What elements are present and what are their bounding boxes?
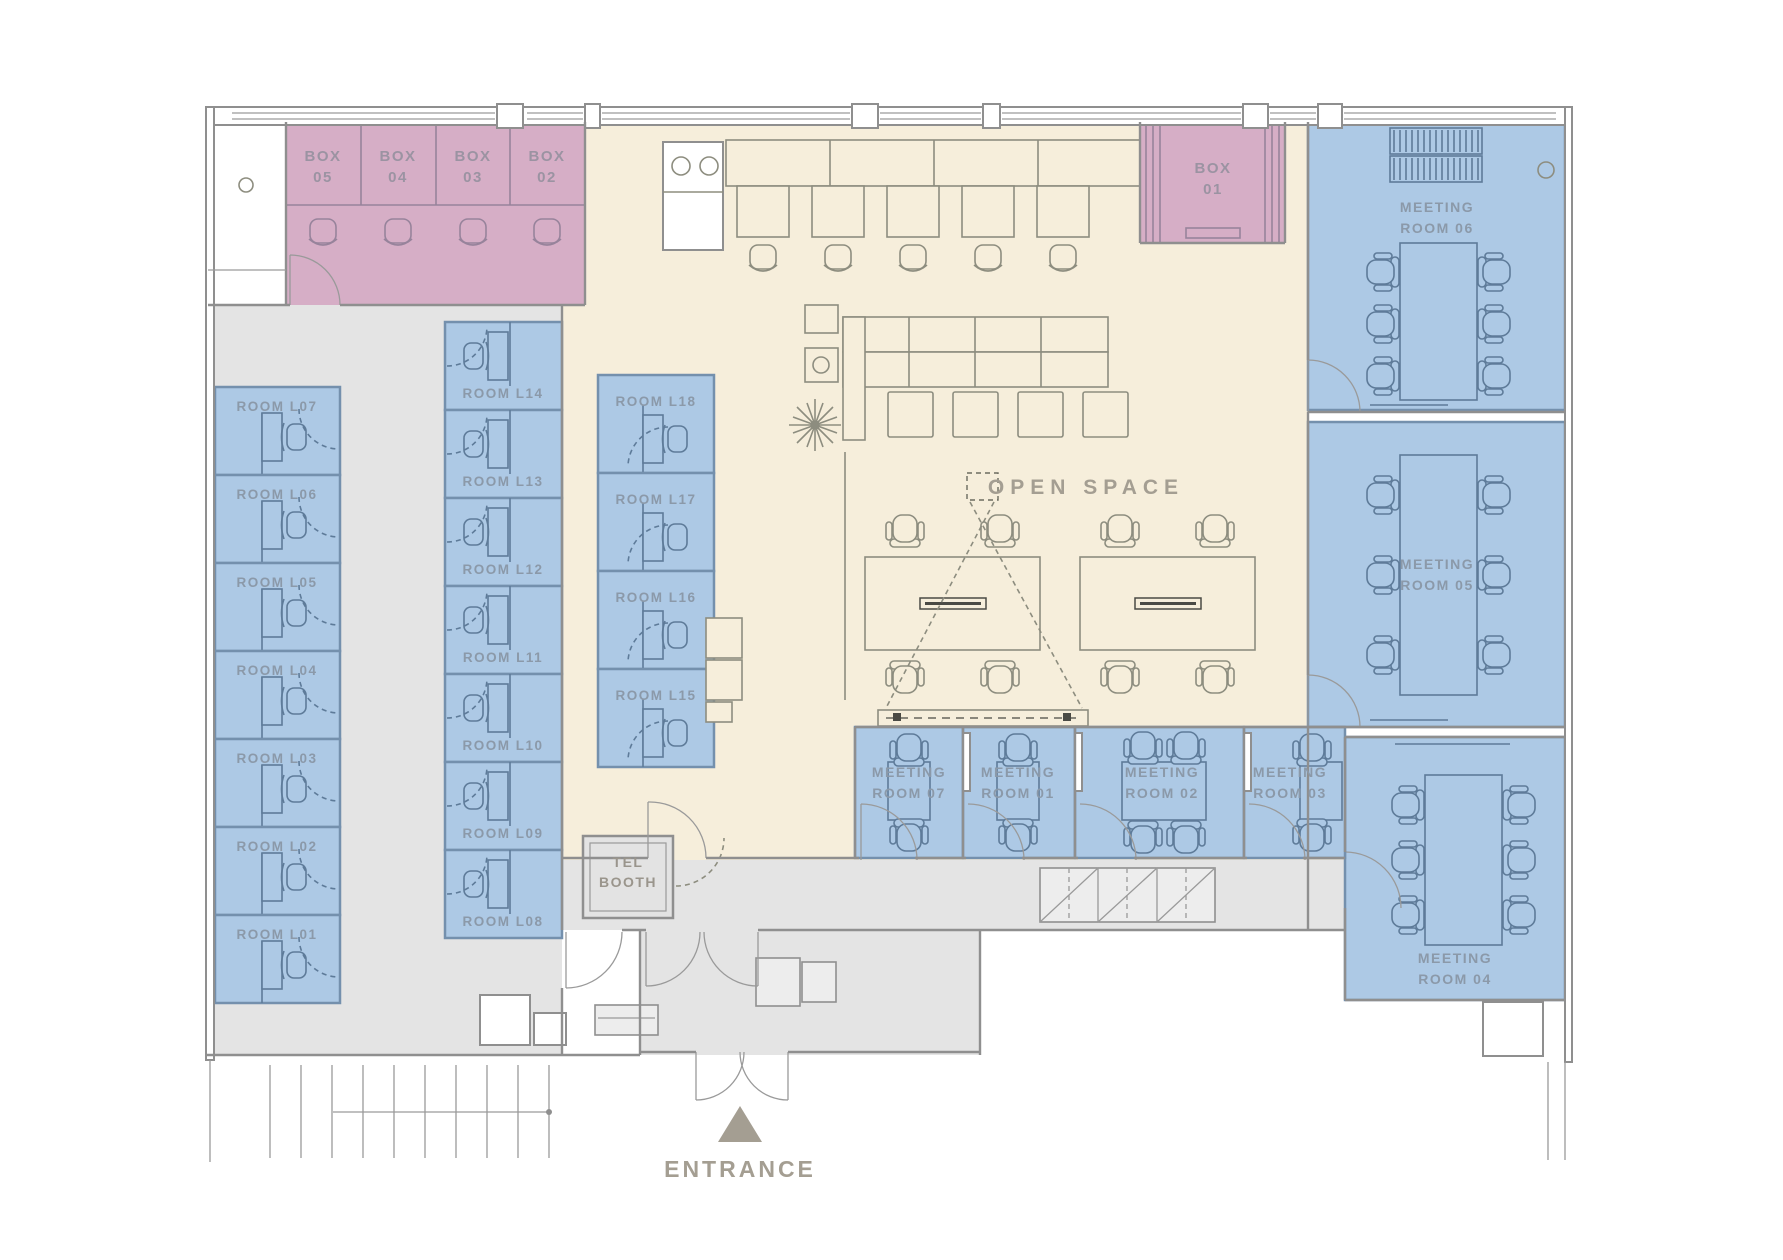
box-04-label: BOX04	[379, 146, 416, 188]
printer	[802, 962, 836, 1002]
left-room-cells	[215, 387, 340, 1003]
room-l02-label: ROOM L02	[236, 839, 317, 854]
right-room-cells	[598, 375, 714, 767]
middle-room-cells	[445, 322, 562, 938]
meeting-table	[1425, 775, 1502, 945]
meeting-room-01-label: MEETINGROOM 01	[981, 762, 1055, 804]
room-l11-label: ROOM L11	[463, 650, 543, 665]
tel-booth-label: TELBOOTH	[599, 852, 657, 892]
cabinet	[480, 995, 530, 1045]
meeting-room-05-label: MEETINGROOM 05	[1400, 554, 1474, 596]
meeting-room-06-label: MEETINGROOM 06	[1400, 197, 1474, 239]
entrance-label: ENTRANCE	[664, 1156, 816, 1183]
corridor-bottom-floor	[562, 860, 1345, 930]
floor-plan-drawing	[0, 0, 1783, 1260]
meeting-room-03-label: MEETINGROOM 03	[1253, 762, 1327, 804]
projector-screen	[878, 710, 1088, 726]
room-l10-label: ROOM L10	[462, 738, 543, 753]
box-02-label: BOX02	[528, 146, 565, 188]
lockers	[1040, 868, 1215, 922]
meeting-room-07-label: MEETINGROOM 07	[872, 762, 946, 804]
box-05-label: BOX05	[304, 146, 341, 188]
meeting-room-02-label: MEETINGROOM 02	[1125, 762, 1199, 804]
room-l09-label: ROOM L09	[462, 826, 543, 841]
meeting-room-04-label: MEETINGROOM 04	[1418, 948, 1492, 990]
room-l06-label: ROOM L06	[236, 487, 317, 502]
meeting-table	[1400, 243, 1477, 400]
room-l08-label: ROOM L08	[462, 914, 543, 929]
room-l17-label: ROOM L17	[615, 492, 696, 507]
utility-room-topleft	[208, 122, 286, 305]
room-l07-label: ROOM L07	[236, 399, 317, 414]
entrance-arrow-icon	[718, 1106, 762, 1142]
door-arc	[696, 1052, 744, 1100]
open-space-label: OPEN SPACE	[988, 476, 1184, 500]
box-03-label: BOX03	[454, 146, 491, 188]
room-l13-label: ROOM L13	[462, 474, 543, 489]
room-l04-label: ROOM L04	[236, 663, 317, 678]
room-l16-label: ROOM L16	[615, 590, 696, 605]
floor-plan: BOX05 BOX04 BOX03 BOX02 BOX01 ROOM L07 R…	[0, 0, 1783, 1260]
bench	[595, 1005, 658, 1035]
door-arc	[566, 932, 622, 988]
kitchen-unit	[663, 142, 723, 250]
staircase	[270, 1065, 552, 1158]
room-l14-label: ROOM L14	[462, 386, 543, 401]
meeting-room-06	[1308, 122, 1565, 412]
door-arc	[740, 1052, 788, 1100]
room-l01-label: ROOM L01	[236, 927, 317, 942]
room-l12-label: ROOM L12	[462, 562, 543, 577]
room-l18-label: ROOM L18	[615, 394, 696, 409]
room-l15-label: ROOM L15	[615, 688, 696, 703]
box-01-label: BOX01	[1194, 158, 1231, 200]
room-l03-label: ROOM L03	[236, 751, 317, 766]
printer	[756, 958, 800, 1006]
room-l05-label: ROOM L05	[236, 575, 317, 590]
